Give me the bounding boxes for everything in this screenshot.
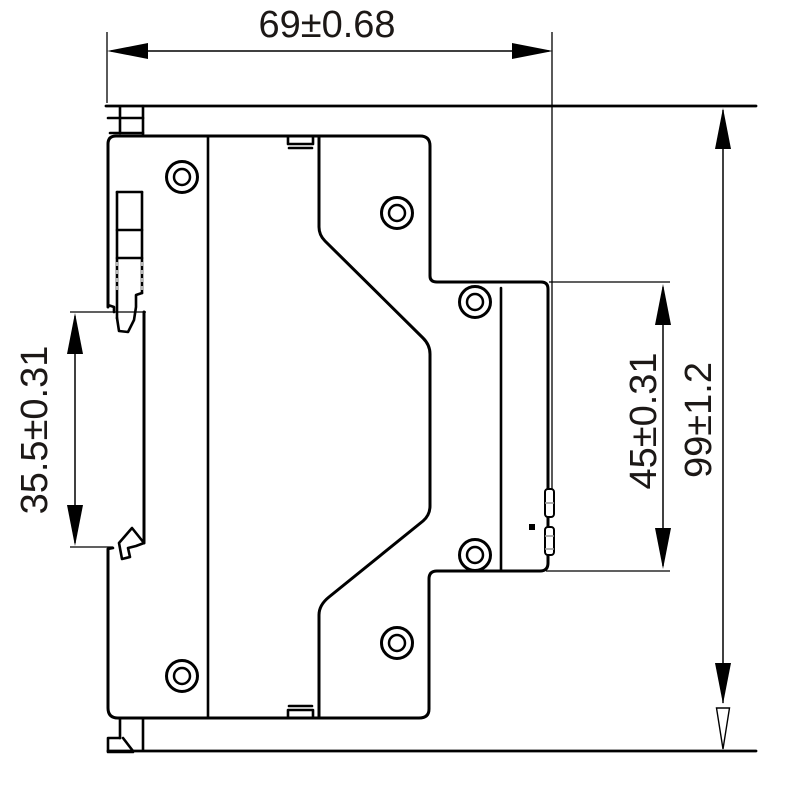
- lower-latch-hook: [119, 528, 144, 559]
- arrowhead-up: [67, 313, 83, 354]
- dimension-din-rail-height: 35.5±0.31: [14, 312, 146, 547]
- arrowhead-down-open: [717, 708, 730, 749]
- terminal-tab-lower: [545, 527, 554, 555]
- dimension-label-overall-height: 99±1.2: [678, 362, 720, 478]
- terminal-side-tabs: [529, 489, 554, 555]
- technical-drawing: 69±0.68 35.5±0.31 45±0.31 99±1.2: [0, 0, 790, 790]
- bottom-latch-notch: [288, 706, 313, 718]
- screw-bosses: [167, 162, 491, 692]
- screw-boss: [460, 287, 491, 318]
- arrowhead-up: [655, 284, 671, 325]
- arrowhead-left: [107, 43, 148, 59]
- top-clip-block: [108, 106, 143, 136]
- arrowhead-down: [67, 505, 83, 546]
- housing-silhouette: [108, 136, 548, 718]
- arrowhead-down: [655, 528, 671, 569]
- screw-boss: [382, 628, 413, 659]
- spring-clip-block: [108, 192, 142, 332]
- screw-boss: [167, 162, 198, 193]
- dimension-label-din-rail-height: 35.5±0.31: [14, 346, 56, 515]
- device-outline: [108, 136, 548, 718]
- indicator-square: [529, 524, 535, 530]
- arrowhead-up: [715, 108, 731, 149]
- dimension-overall-height: 99±1.2: [678, 108, 731, 749]
- top-latch-notch: [288, 136, 313, 148]
- front-hump-outline: [319, 136, 430, 718]
- dimension-terminal-height: 45±0.31: [546, 282, 671, 571]
- technical-drawing-page: 69±0.68 35.5±0.31 45±0.31 99±1.2: [0, 0, 790, 790]
- dimension-label-overall-width: 69±0.68: [258, 4, 395, 46]
- arrowhead-down: [715, 663, 731, 704]
- screw-boss: [382, 198, 413, 229]
- bottom-foot-block: [108, 718, 143, 752]
- arrowhead-right: [512, 43, 553, 59]
- din-rail-clip: [108, 106, 144, 752]
- screw-boss: [167, 661, 198, 692]
- screw-boss: [460, 540, 491, 571]
- dimension-label-terminal-height: 45±0.31: [623, 352, 665, 489]
